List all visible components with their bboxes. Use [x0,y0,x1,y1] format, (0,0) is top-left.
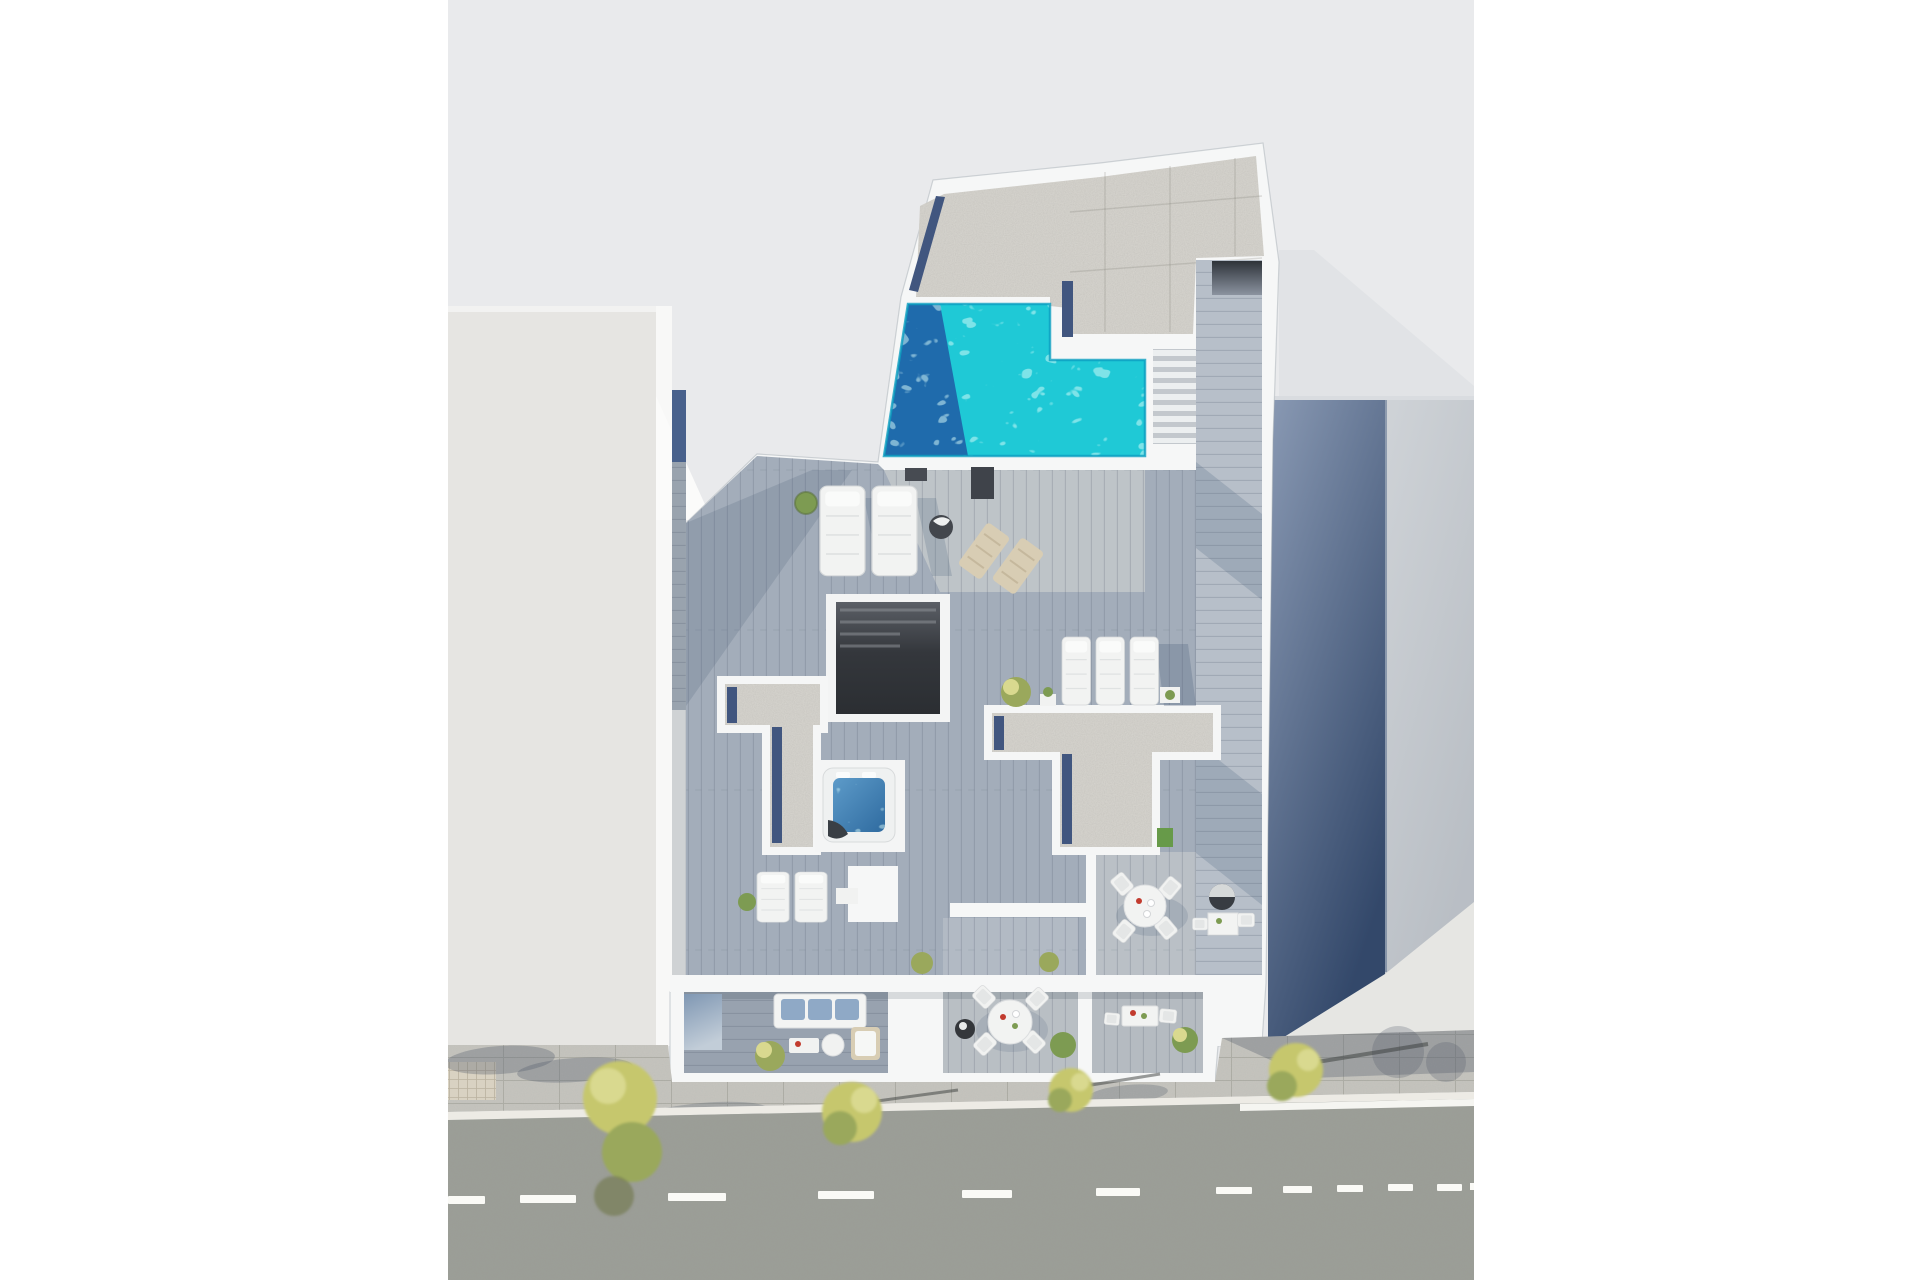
bistro-ground-chair-1 [1159,1008,1177,1023]
turf-patch [1157,828,1173,847]
stairwell-shaft [836,602,940,714]
pool-mat-1 [905,468,927,481]
render-canvas [0,0,1920,1280]
bistro-chair-2 [1193,918,1208,930]
rattan-cushion [855,1031,876,1056]
stairwell [826,594,950,722]
coffee-table-bowl [795,1041,801,1047]
gap-lower-wall [672,710,686,1010]
deck-shrub-2 [1039,952,1059,972]
sun-lounger-3 [1062,637,1091,705]
right-building-shadow-face [1268,398,1385,1047]
dark-planter-flower [959,1022,967,1030]
skylight-strip-l2 [772,727,782,843]
sun-lounger-5 [1130,637,1159,705]
wall-band-2 [670,975,1262,992]
round-side-table [822,1034,844,1056]
mid-side-table [836,888,858,904]
skylight-strip-vertical [1062,281,1073,337]
left-building [448,306,712,1046]
right-building [1268,396,1474,1048]
coffee-table [789,1038,819,1053]
left-margin [0,0,448,1280]
jacuzzi-ripples [833,778,885,832]
terrace-bush-2 [1050,1032,1076,1058]
dining-terrace-wall [1086,855,1096,977]
aerial-render [0,0,1920,1280]
bistro-chair-1 [1238,913,1255,927]
terrace-bush-1-light [756,1042,772,1058]
jacuzzi [815,760,905,852]
sun-lounger-7 [795,872,827,922]
sun-lounger-2 [872,486,917,576]
walkway-doorway-shadow [1212,261,1262,295]
jacuzzi-headrest-1 [836,772,850,778]
dining-plate-1 [1148,900,1155,907]
solarium-tree-light [1003,679,1019,695]
sun-lounger-4 [1096,637,1125,705]
bistro-red [1130,1010,1136,1016]
bistro-green-item [1216,918,1222,924]
sun-lounger-1 [820,486,865,576]
mid-plant [738,893,756,911]
pool-mat-2 [971,467,994,499]
right-building-half-shadow [1385,398,1474,974]
skylight-strip-t2 [1062,754,1072,844]
ground-dining-table [988,1000,1032,1044]
ground-green-item [1012,1023,1018,1029]
terrace-bush-3-light [1173,1028,1187,1042]
dining-plate-2 [1144,911,1151,918]
side-table-plant-1 [1043,687,1053,697]
bistro-table-upper [1208,913,1238,935]
left-building-roof-face [448,306,672,1046]
gap-wood-joints [672,462,686,710]
bistro-table-ground [1122,1006,1158,1026]
bistro-green [1141,1013,1147,1019]
ground-red-item [1000,1014,1006,1020]
dining-table [1124,885,1166,927]
bistro-ground-chair-2 [1104,1012,1120,1025]
left-building-roof-edge [448,306,672,312]
skylight-strip-t1 [994,716,1004,750]
glass-door-reflection [684,994,722,1050]
skylight-strip-l1 [727,687,737,723]
sun-lounger-6 [757,872,789,922]
ground-plate [1013,1011,1020,1018]
right-margin [1474,0,1920,1280]
right-building-roof-edge [1268,396,1474,400]
dining-table-red-item [1136,898,1142,904]
ground-wall-corner [1203,983,1262,1046]
stair-treads [1153,350,1196,443]
deck-shrub-1 [911,952,933,974]
wall-band-1 [950,903,1092,917]
terrace-top-shadow [684,992,1203,999]
gap-glazing-strip [672,390,686,462]
sofa-cushions [781,999,859,1020]
jacuzzi-headrest-2 [862,772,876,778]
side-table-plant-2 [1165,690,1175,700]
